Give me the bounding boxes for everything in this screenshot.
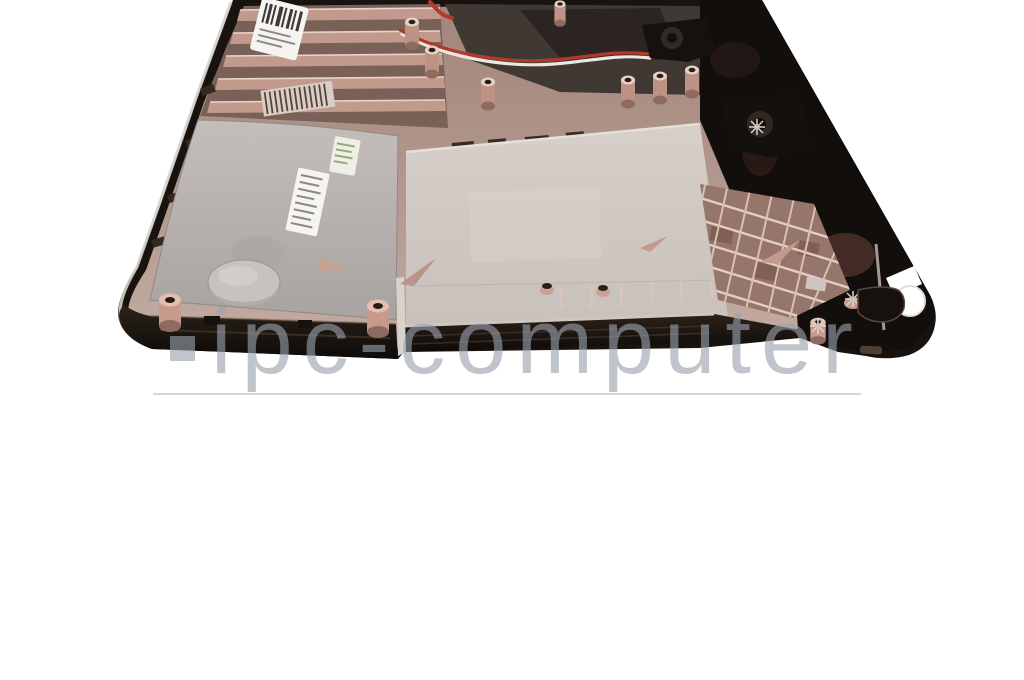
screw-boss [367,300,389,339]
star-washer-icon [749,119,765,135]
speaker-dome [208,260,280,306]
hinge-mount-right [722,92,812,158]
laptop-bottom-case-photo [0,0,1024,680]
product-photo-page: ipc-computer [0,0,1024,680]
star-washer-icon [810,318,826,334]
divider-line [153,393,861,395]
center-panel [406,124,728,328]
screw-boss [159,294,181,333]
hinge-mount-top [642,18,716,62]
